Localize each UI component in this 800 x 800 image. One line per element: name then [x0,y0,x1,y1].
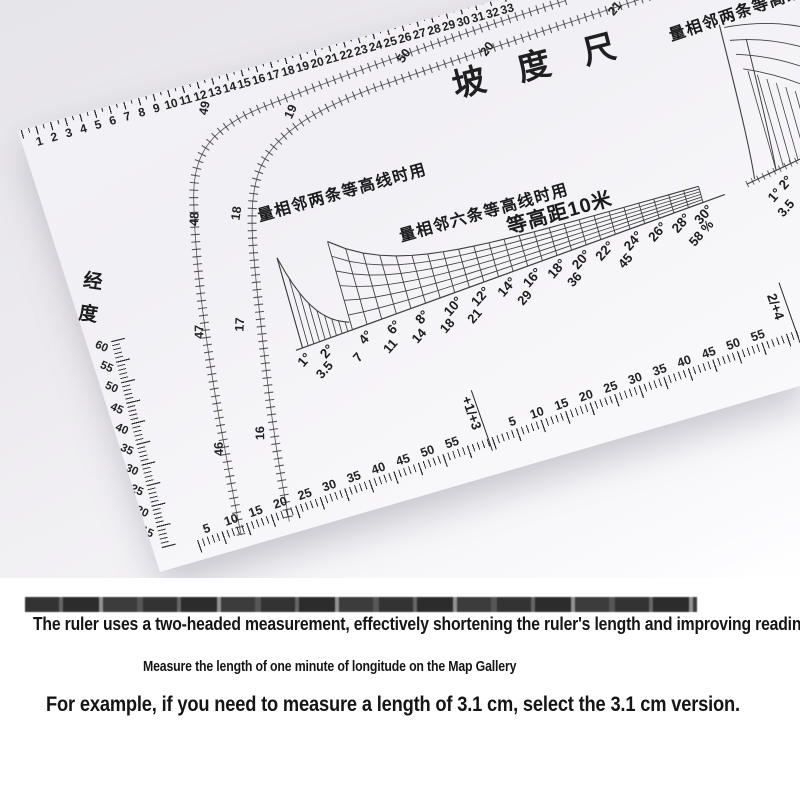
scale-label: 50 [394,46,414,65]
bottom-scale-segment-1: 510152025303540455055 [192,432,467,540]
scale-label: 48 [187,212,202,227]
scale-label: 6° [384,317,404,337]
scale-label: 12° [468,284,493,309]
divider-1-label: +1/+3 [459,394,485,432]
scale-label: 17 [232,317,247,332]
scale-label: 49 [196,100,213,117]
two-contours-label: 量相邻两条等高线时用 [254,155,429,226]
right-graph-label: 量相邻两条等高线时用 [665,0,800,46]
scale-label: 18 [437,315,458,336]
scale-label: 28° [669,210,694,235]
top-cm-scale: 1234567891011121314151617181920212223242… [30,0,516,150]
left-minute-scale: 60555045403530252015 [86,328,183,560]
caption-line-3: For example, if you need to measure a le… [46,692,740,717]
scale-label: 47 [192,325,206,339]
scale-label: 7 [350,350,366,365]
caption-line-1: The ruler uses a two-headed measurement,… [33,613,800,635]
ruler-shadow: 1234567891011121314151617181920212223242… [0,0,800,578]
scale-label: 45 [615,250,636,271]
bottom-minute-scale: 510152025303540455055 +1/+3 510152025303… [192,288,800,554]
scale-label: 20 [125,497,152,525]
product-image: 1234567891011121314151617181920212223242… [0,0,800,800]
cropped-text-strip [25,597,697,612]
scale-label: 30 [115,456,142,484]
scale-label: 25 [120,476,147,504]
slope-ruler: 1234567891011121314151617181920212223242… [0,0,800,578]
scale-label: 14 [408,325,429,346]
scale-label: 10° [441,294,466,319]
scale-label: 33 [498,0,516,18]
scale-label: 35 [110,435,137,463]
scale-label: 18 [228,205,244,221]
scale-label: 2° [317,342,337,362]
ruler-face: 1234567891011121314151617181920212223242… [20,0,800,578]
scale-label: 4° [356,328,376,348]
scale-label: 29 [514,287,535,308]
product-photo: 1234567891011121314151617181920212223242… [0,0,800,578]
caption-line-2: Measure the length of one minute of long… [143,659,516,675]
scale-label: 15 [130,517,157,545]
bottom-scale-segment-2: 510152025303540455055 [498,325,773,433]
scale-label: 3.5 [313,358,336,381]
scale-label: 46 [212,442,227,457]
scale-label: 36 [564,269,585,290]
ruler-title: 坡度尺 [446,11,653,107]
scale-label: 21 [464,305,485,326]
scale-label: 19 [281,102,299,120]
scale-label: 26° [645,219,670,244]
scale-label: 16 [253,426,267,440]
scale-label: 8° [412,307,432,327]
bottom-scale-tick-marks [197,302,800,552]
longitude-label: 经度 [70,269,106,338]
scale-label: 1° [294,350,314,370]
scale-label: 22° [592,238,617,263]
scale-label: 11 [380,336,400,356]
